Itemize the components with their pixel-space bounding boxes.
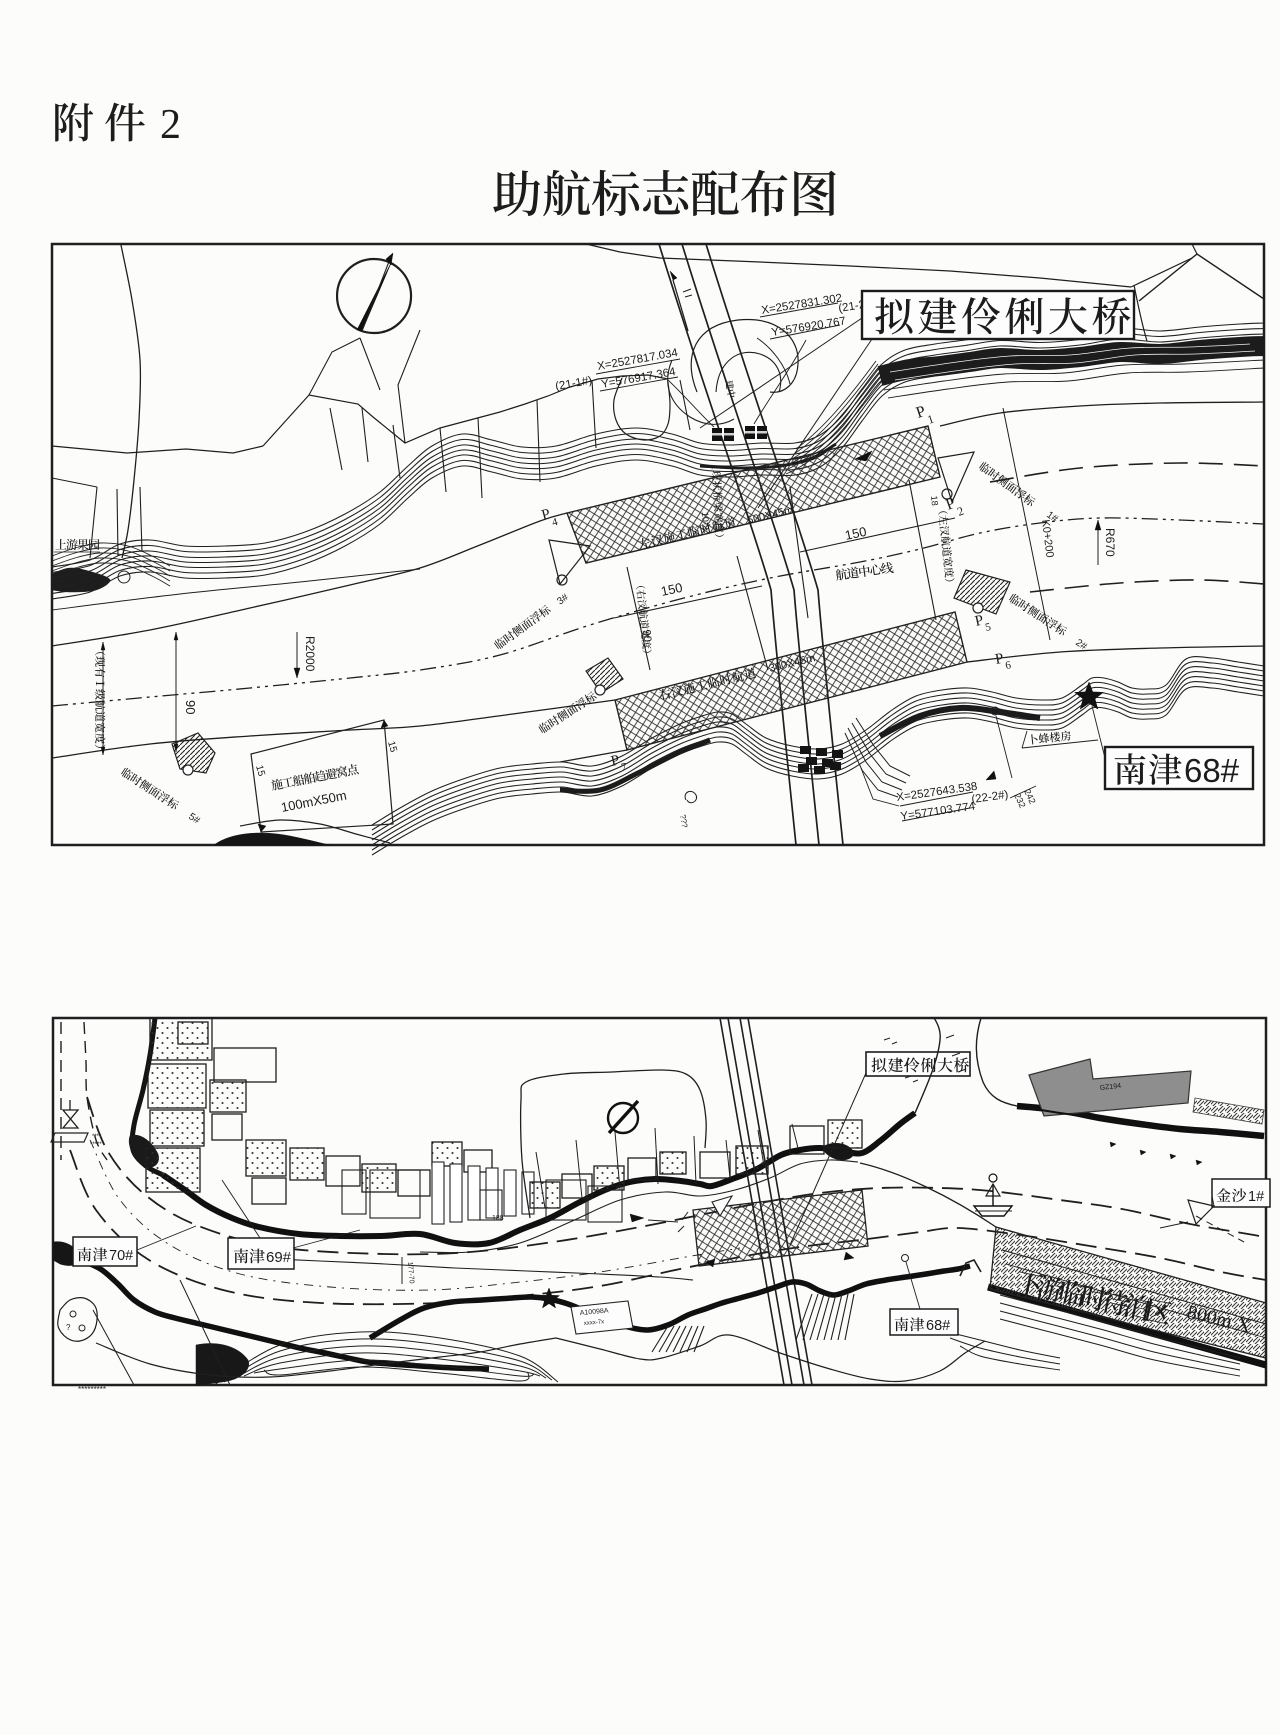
svg-text:188: 188	[492, 1215, 504, 1222]
svg-text:1#: 1#	[1248, 1189, 1264, 1205]
svg-text:10-2: 10-2	[700, 512, 711, 531]
svg-text:90: 90	[183, 700, 198, 714]
svg-text:68#: 68#	[926, 1318, 950, 1334]
svg-text:68#: 68#	[1184, 752, 1240, 789]
svg-text:70#: 70#	[109, 1248, 133, 1264]
svg-text:69#: 69#	[266, 1249, 292, 1266]
svg-text:2: 2	[160, 102, 181, 148]
svg-text:****: ****	[92, 1134, 102, 1140]
svg-text:90: 90	[640, 629, 653, 642]
svg-text:18: 18	[929, 495, 940, 506]
svg-text:?: ?	[66, 1323, 71, 1332]
svg-text:*********: *********	[78, 1385, 106, 1394]
svg-text:R670: R670	[1103, 528, 1117, 557]
svg-text:*****: *****	[90, 1142, 102, 1148]
svg-text:R2000: R2000	[303, 636, 317, 672]
